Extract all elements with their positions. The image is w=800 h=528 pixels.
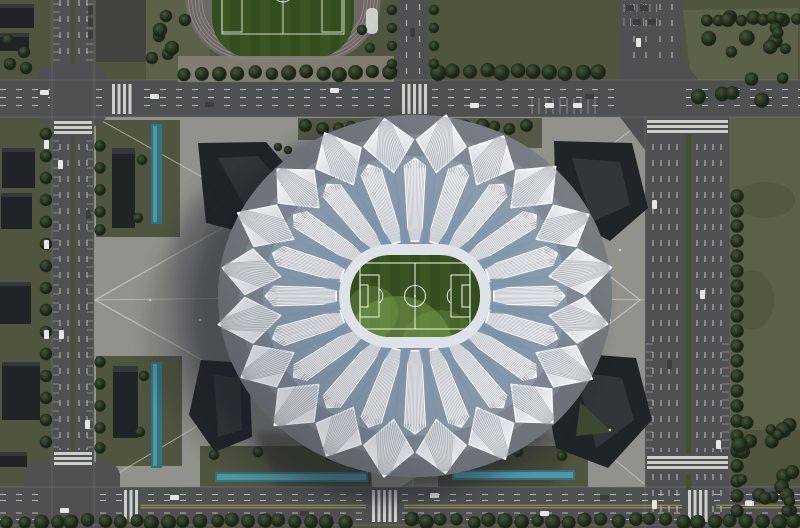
scene-svg	[0, 0, 800, 528]
aerial-render	[0, 0, 800, 528]
